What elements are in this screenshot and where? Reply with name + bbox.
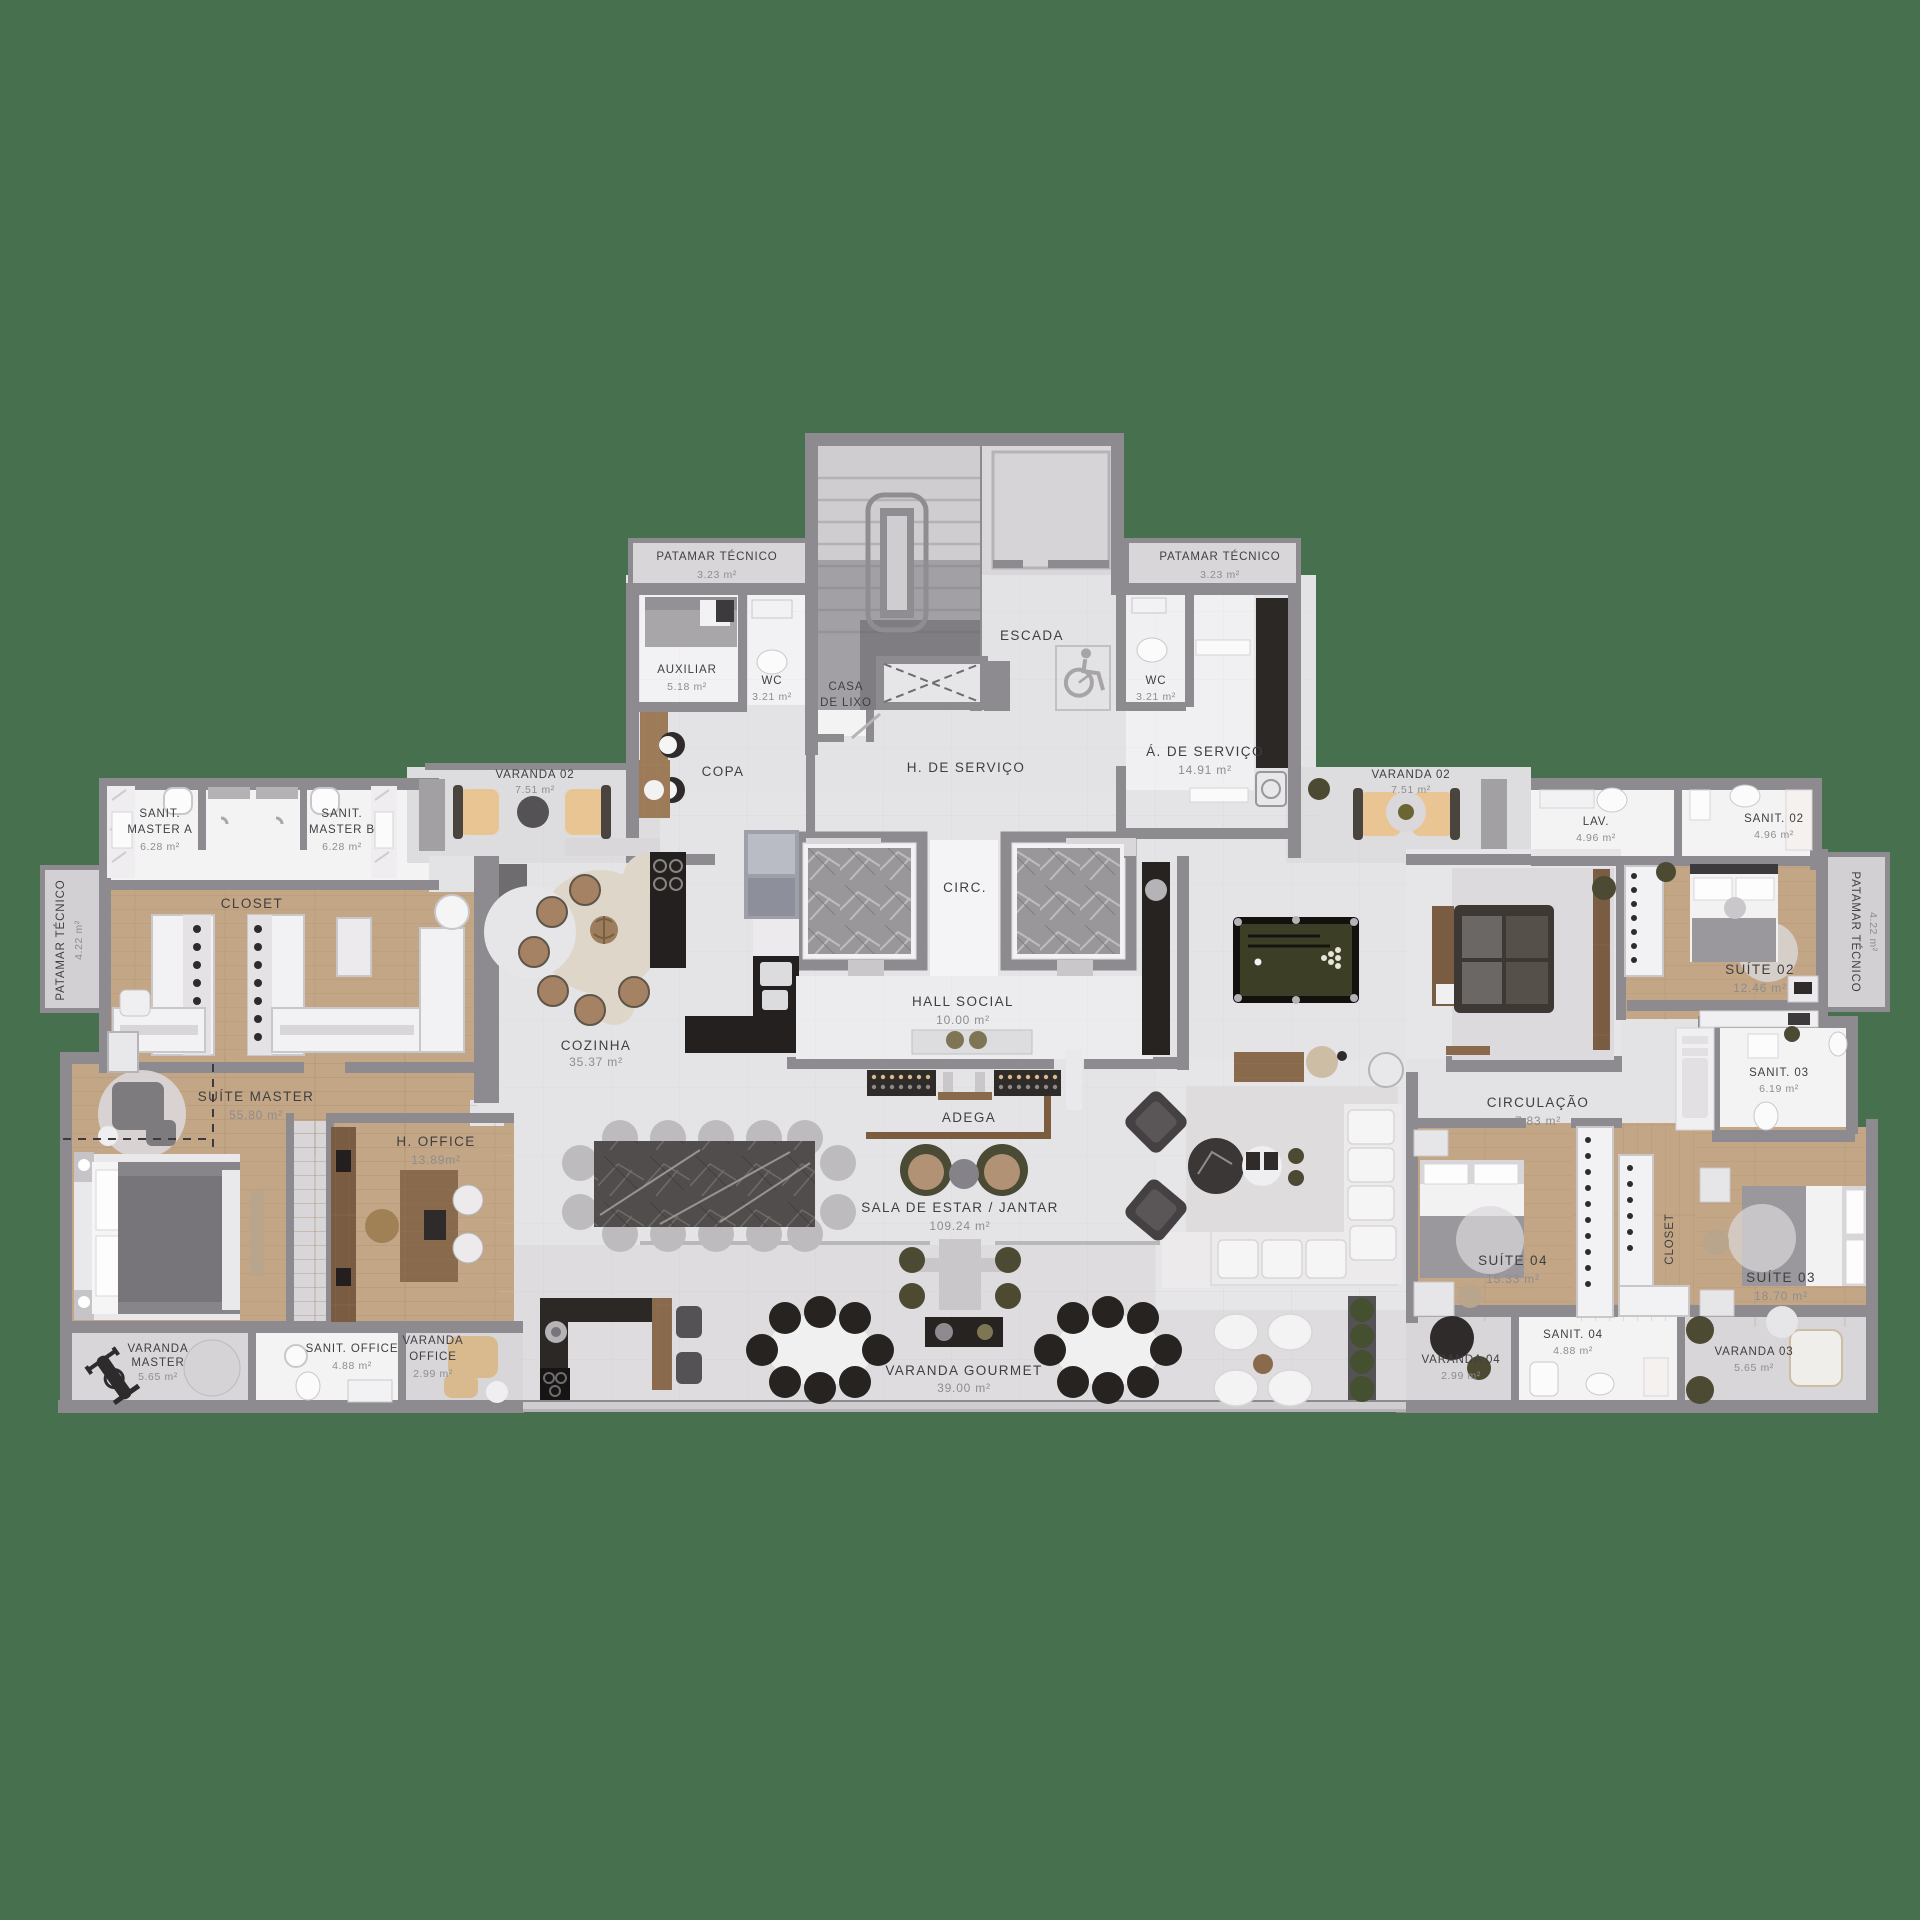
svg-text:WC: WC: [1146, 675, 1167, 687]
svg-text:4.88 m²: 4.88 m²: [1553, 1345, 1593, 1357]
svg-text:39.00 m²: 39.00 m²: [937, 1381, 991, 1395]
svg-text:VARANDA 02: VARANDA 02: [1371, 769, 1450, 781]
svg-text:SUÍTE 03: SUÍTE 03: [1746, 1270, 1816, 1285]
svg-text:MASTER: MASTER: [131, 1357, 184, 1369]
svg-text:PATAMAR TÉCNICO: PATAMAR TÉCNICO: [1849, 871, 1862, 992]
svg-text:7.83 m²: 7.83 m²: [1515, 1114, 1561, 1128]
svg-text:MASTER A: MASTER A: [127, 824, 192, 836]
svg-text:SUÍTE 02: SUÍTE 02: [1725, 962, 1795, 977]
svg-text:CASA: CASA: [829, 681, 864, 693]
svg-text:PATAMAR TÉCNICO: PATAMAR TÉCNICO: [1159, 550, 1280, 563]
svg-text:CLOSET: CLOSET: [221, 896, 283, 911]
svg-text:15.33 m²: 15.33 m²: [1486, 1272, 1540, 1286]
svg-text:H. OFFICE: H. OFFICE: [396, 1134, 475, 1149]
svg-text:7.51 m²: 7.51 m²: [515, 784, 555, 796]
svg-text:WC: WC: [762, 675, 783, 687]
svg-text:ESCADA: ESCADA: [1000, 628, 1064, 643]
svg-text:3.23 m²: 3.23 m²: [697, 569, 737, 581]
svg-text:3.21 m²: 3.21 m²: [752, 691, 792, 703]
svg-text:55.80 m²: 55.80 m²: [229, 1108, 283, 1122]
svg-text:SUÍTE MASTER: SUÍTE MASTER: [198, 1089, 315, 1104]
svg-text:6.28 m²: 6.28 m²: [322, 841, 362, 853]
svg-text:H. DE SERVIÇO: H. DE SERVIÇO: [907, 760, 1025, 775]
svg-text:4.88 m²: 4.88 m²: [332, 1360, 372, 1372]
svg-text:4.96 m²: 4.96 m²: [1576, 832, 1616, 844]
svg-text:35.37 m²: 35.37 m²: [569, 1055, 623, 1069]
svg-text:SANIT.: SANIT.: [321, 808, 362, 820]
svg-text:SANIT. OFFICE: SANIT. OFFICE: [306, 1343, 399, 1355]
svg-text:CIRCULAÇÃO: CIRCULAÇÃO: [1487, 1095, 1590, 1110]
svg-text:4.96 m²: 4.96 m²: [1754, 829, 1794, 841]
svg-text:6.28 m²: 6.28 m²: [140, 841, 180, 853]
svg-text:SANIT.: SANIT.: [139, 808, 180, 820]
svg-text:4.22 m²: 4.22 m²: [73, 920, 85, 960]
svg-text:VARANDA 04: VARANDA 04: [1421, 1354, 1500, 1366]
svg-text:3.21 m²: 3.21 m²: [1136, 691, 1176, 703]
svg-text:SANIT. 02: SANIT. 02: [1744, 813, 1804, 825]
svg-text:AUXILIAR: AUXILIAR: [657, 664, 717, 676]
svg-text:ADEGA: ADEGA: [942, 1110, 996, 1125]
svg-text:SANIT. 03: SANIT. 03: [1749, 1067, 1809, 1079]
svg-text:18.70 m²: 18.70 m²: [1754, 1289, 1808, 1303]
svg-text:12.46 m²: 12.46 m²: [1733, 981, 1787, 995]
svg-text:2.99 m²: 2.99 m²: [413, 1368, 453, 1380]
svg-text:Á. DE SERVIÇO: Á. DE SERVIÇO: [1146, 744, 1264, 759]
svg-text:COPA: COPA: [702, 764, 745, 779]
svg-text:7.51 m²: 7.51 m²: [1391, 784, 1431, 796]
svg-text:3.23 m²: 3.23 m²: [1200, 569, 1240, 581]
svg-text:COZINHA: COZINHA: [561, 1038, 632, 1053]
svg-text:6.19 m²: 6.19 m²: [1759, 1083, 1799, 1095]
svg-text:109.24 m²: 109.24 m²: [929, 1219, 990, 1233]
svg-text:VARANDA: VARANDA: [127, 1343, 188, 1355]
svg-text:HALL SOCIAL: HALL SOCIAL: [912, 994, 1014, 1009]
svg-text:4.22 m²: 4.22 m²: [1867, 912, 1879, 952]
svg-text:PATAMAR TÉCNICO: PATAMAR TÉCNICO: [54, 879, 67, 1000]
svg-text:OFFICE: OFFICE: [409, 1351, 457, 1363]
svg-text:SUÍTE 04: SUÍTE 04: [1478, 1253, 1548, 1268]
svg-text:VARANDA GOURMET: VARANDA GOURMET: [885, 1363, 1042, 1378]
svg-text:VARANDA 03: VARANDA 03: [1714, 1346, 1793, 1358]
svg-text:5.65 m²: 5.65 m²: [138, 1371, 178, 1383]
svg-text:LAV.: LAV.: [1583, 816, 1610, 828]
svg-text:MASTER B: MASTER B: [309, 824, 375, 836]
svg-text:DE LIXO: DE LIXO: [820, 697, 872, 709]
svg-text:SALA DE ESTAR / JANTAR: SALA DE ESTAR / JANTAR: [861, 1200, 1059, 1215]
svg-text:PATAMAR TÉCNICO: PATAMAR TÉCNICO: [656, 550, 777, 563]
svg-text:10.00 m²: 10.00 m²: [936, 1013, 990, 1027]
svg-text:5.65 m²: 5.65 m²: [1734, 1362, 1774, 1374]
svg-text:CLOSET: CLOSET: [1664, 1213, 1676, 1264]
svg-text:VARANDA 02: VARANDA 02: [495, 769, 574, 781]
svg-text:5.18 m²: 5.18 m²: [667, 681, 707, 693]
svg-text:14.91 m²: 14.91 m²: [1178, 763, 1232, 777]
svg-text:2.99 m²: 2.99 m²: [1441, 1370, 1481, 1382]
svg-text:SANIT. 04: SANIT. 04: [1543, 1329, 1603, 1341]
svg-text:VARANDA: VARANDA: [402, 1335, 463, 1347]
svg-text:CIRC.: CIRC.: [943, 880, 987, 895]
svg-text:13.89m²: 13.89m²: [411, 1153, 461, 1167]
